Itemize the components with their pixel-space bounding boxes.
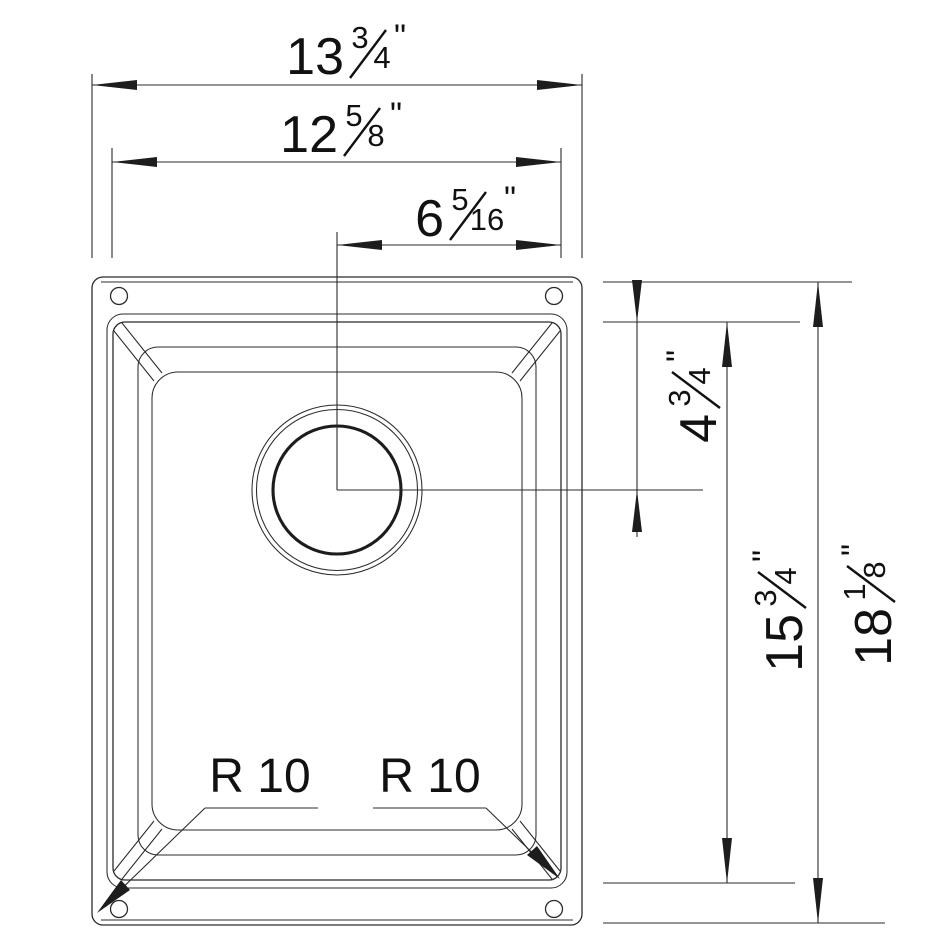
dim-label-bowl-width: 12 5 8 " <box>280 96 402 164</box>
dim-text: 1 <box>837 583 872 600</box>
arrowhead <box>537 80 582 90</box>
mounting-hole-bottom-left <box>111 901 128 918</box>
inch-mark: " <box>660 350 698 362</box>
inch-mark: " <box>504 180 516 218</box>
dim-text: 6 <box>415 190 444 248</box>
dim-text: 4 <box>373 40 390 75</box>
dim-text: 5 <box>451 182 468 217</box>
dim-label-overall-length: 18 1 8 " <box>835 544 903 666</box>
radius-callout-right: R 10 <box>373 750 560 879</box>
dim-text: 8 <box>367 118 384 153</box>
radius-label: R 10 <box>209 750 310 803</box>
arrowhead <box>632 490 642 532</box>
arrowhead <box>722 838 732 883</box>
dim-text: 4 <box>768 567 803 584</box>
dim-label-drain-offset-y: 4 3 4 " <box>660 350 728 443</box>
dim-label-bowl-length: 15 3 4 " <box>746 550 814 672</box>
dim-drain-offset-y: 4 3 4 " <box>632 280 728 537</box>
mounting-hole-top-left <box>111 288 128 305</box>
dim-drain-offset-x: 6 5 16 " <box>337 180 561 250</box>
arrowhead <box>722 322 732 367</box>
dim-text: 8 <box>857 561 892 578</box>
drawing-canvas: 13 3 4 " 12 5 8 " 6 5 16 " <box>0 0 950 950</box>
dim-text: 13 <box>286 28 344 86</box>
dim-text: 3 <box>748 589 783 606</box>
inch-mark: " <box>394 18 406 56</box>
sink-spec-drawing: 13 3 4 " 12 5 8 " 6 5 16 " <box>0 0 950 950</box>
arrowhead <box>112 157 157 167</box>
mounting-hole-top-right <box>546 288 563 305</box>
dim-text: 12 <box>280 106 338 164</box>
arrowhead <box>813 282 823 327</box>
dim-text: 5 <box>345 98 362 133</box>
dim-text: 3 <box>662 389 697 406</box>
inch-mark: " <box>835 544 873 556</box>
dim-text: 15 <box>756 614 814 672</box>
arrowhead <box>516 157 561 167</box>
arrowhead <box>337 240 382 250</box>
arrowhead <box>813 878 823 923</box>
dim-label-overall-width: 13 3 4 " <box>286 18 406 86</box>
radius-callout-left: R 10 <box>97 750 318 913</box>
inch-mark: " <box>746 550 784 562</box>
arrowhead <box>632 280 642 322</box>
arrowhead <box>92 80 137 90</box>
dim-text: 18 <box>845 608 903 666</box>
dim-overall-length: 18 1 8 " <box>813 282 903 923</box>
dim-text: 3 <box>351 20 368 55</box>
dim-bowl-length: 15 3 4 " <box>722 322 814 883</box>
dim-text: 16 <box>470 202 504 237</box>
mounting-hole-bottom-right <box>546 901 563 918</box>
inch-mark: " <box>390 96 402 134</box>
radius-label: R 10 <box>379 750 480 803</box>
dim-text: 4 <box>682 367 717 384</box>
arrowhead <box>516 240 561 250</box>
dim-text: 4 <box>670 414 728 443</box>
dim-label-drain-offset-x: 6 5 16 " <box>415 180 516 248</box>
